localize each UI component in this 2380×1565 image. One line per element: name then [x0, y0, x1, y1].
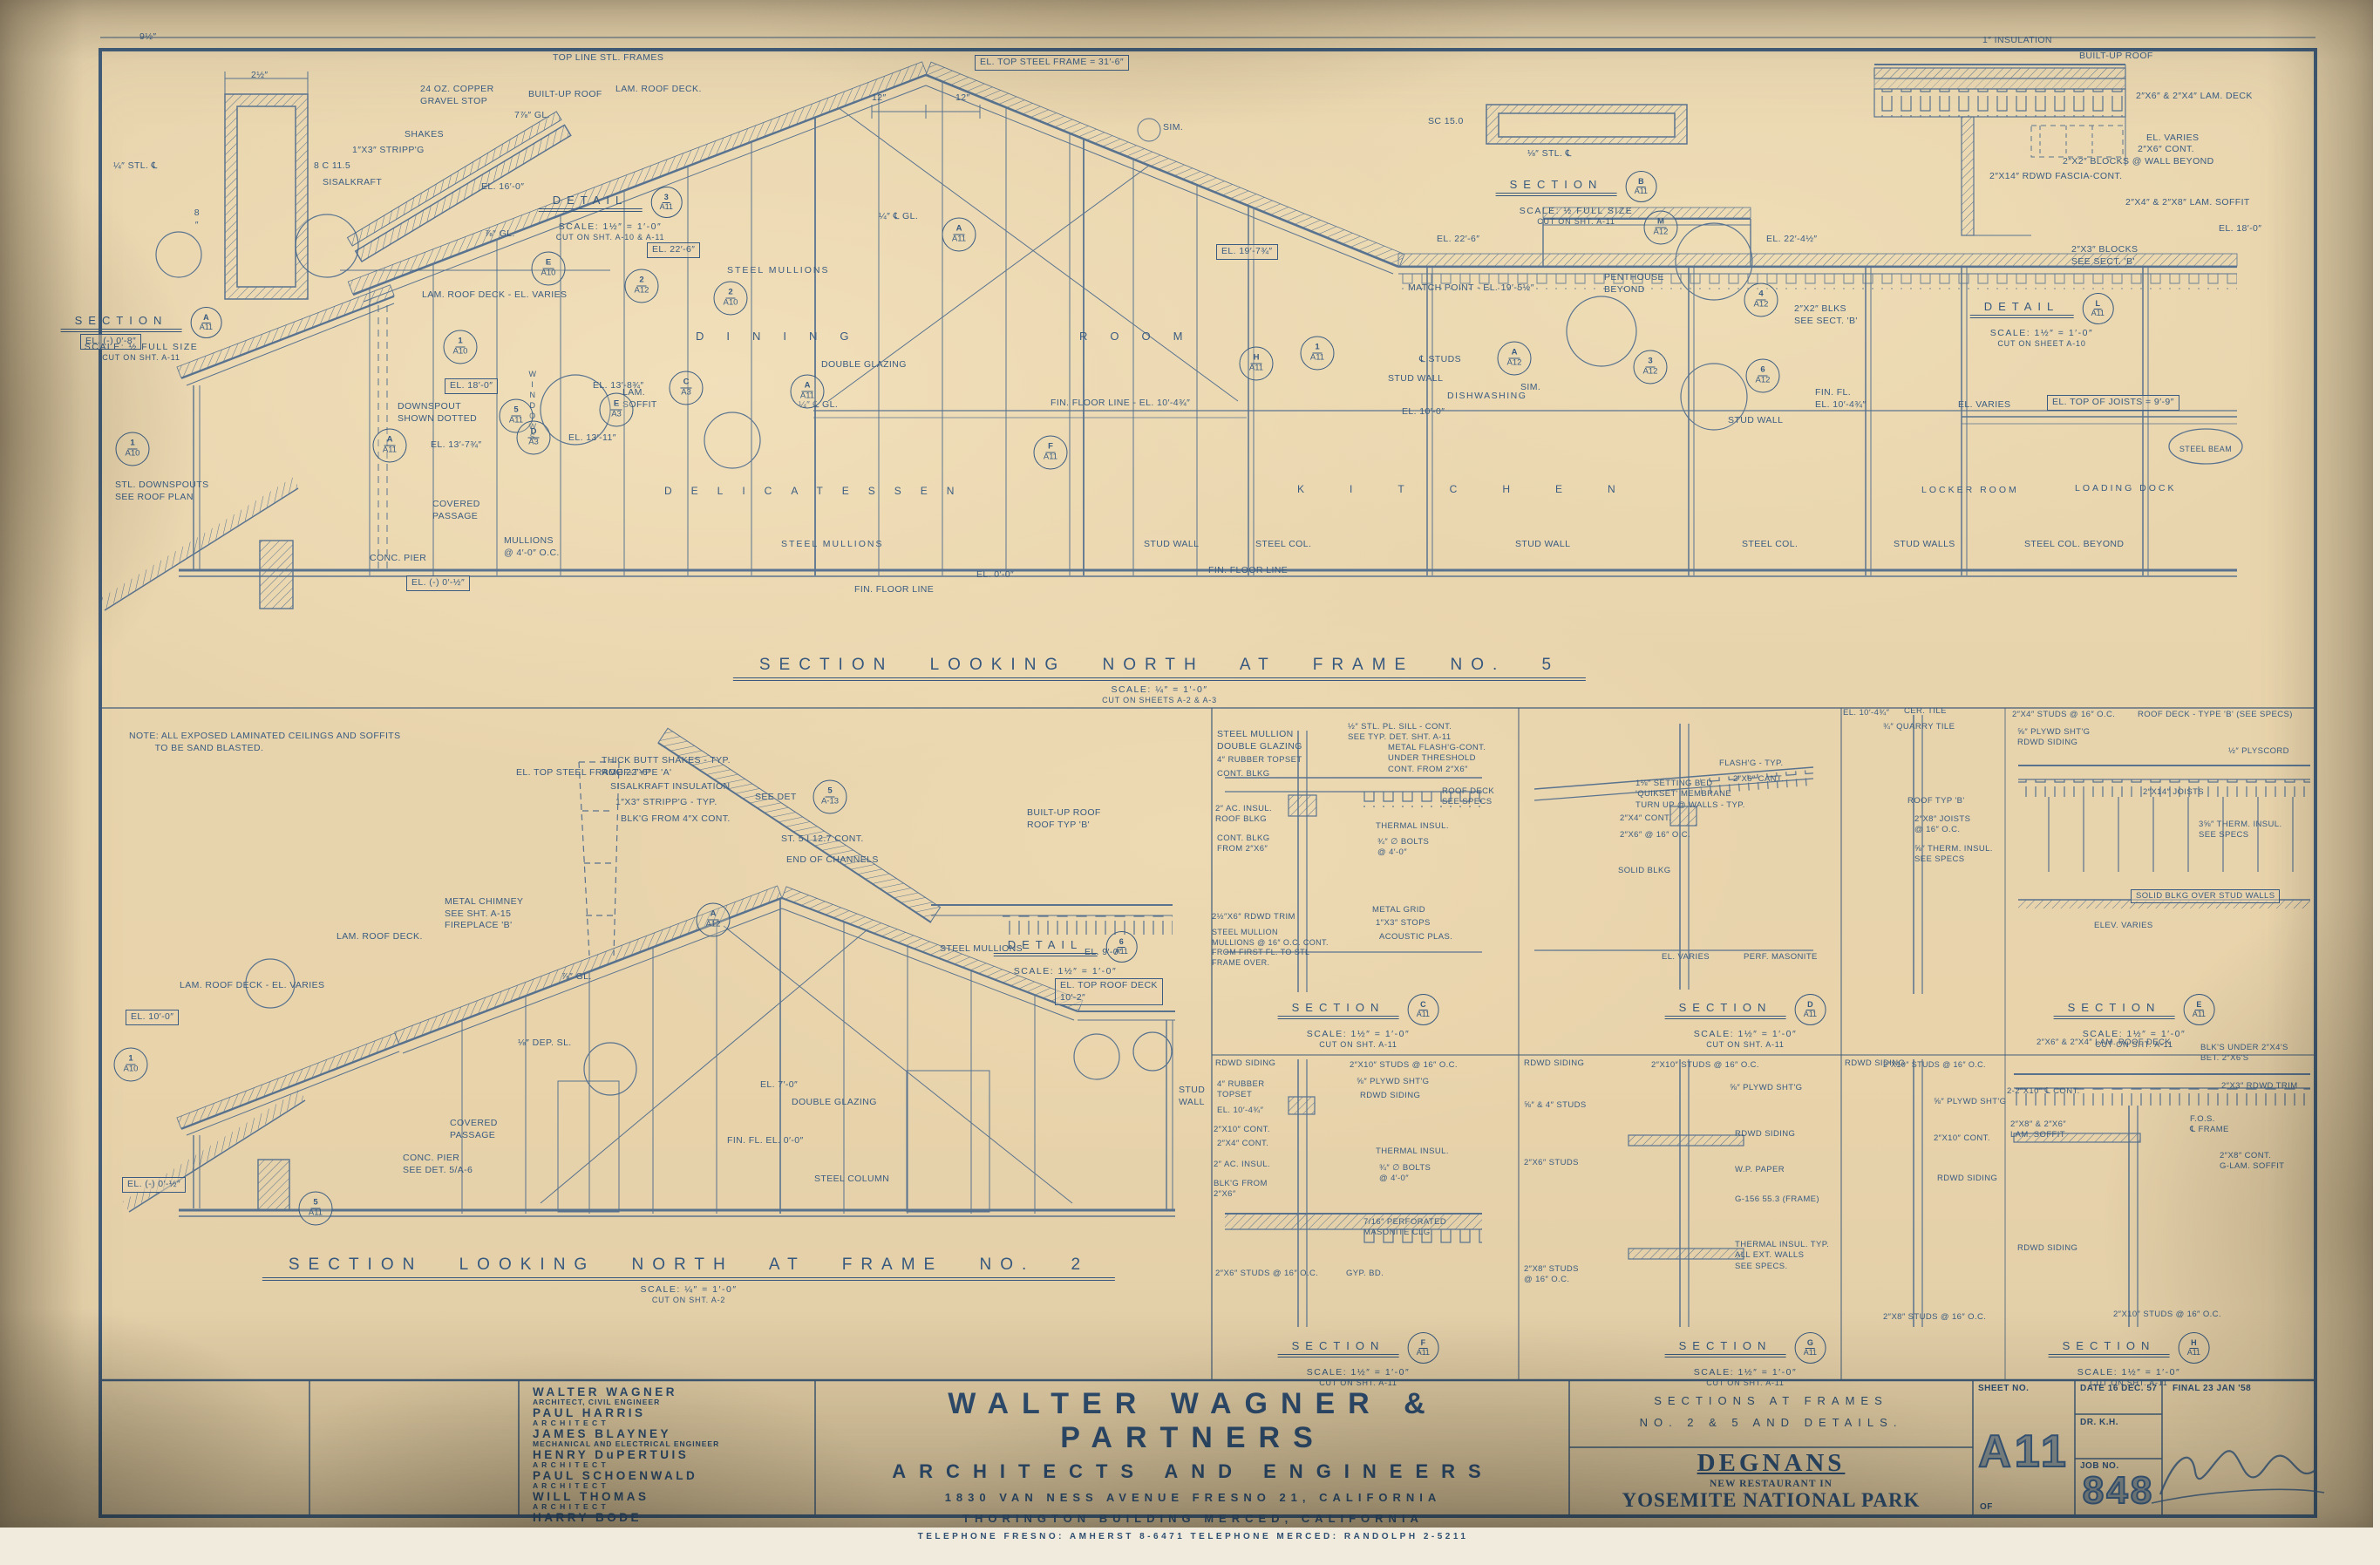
annotation: DOUBLE GLAZING: [792, 1097, 877, 1109]
annotation: CONT. BLKG FROM 2″x6″: [1217, 834, 1270, 855]
section-ref-bubble: CA11: [1407, 994, 1438, 1025]
annotation: THERMAL INSUL.: [1376, 821, 1449, 832]
annotation: SOLID BLKG: [1618, 866, 1671, 876]
section-scale: SCALE: 1½″ = 1′-0″: [1665, 1029, 1826, 1039]
annotation: THICK BUTT SHAKES - TYP. ROOF-TYPE 'A': [602, 755, 731, 779]
section-cut-note: CUT ON SHEETS A-2 & A-3: [733, 696, 1586, 704]
annotation: ⅞″ GL.: [561, 971, 592, 983]
annotation: ℄ STUDS: [1419, 354, 1461, 366]
annotation: W.P. PAPER: [1735, 1165, 1785, 1175]
annotation: EL. 18′-0″: [445, 378, 498, 394]
annotation: EL. 18′-0″: [2219, 223, 2261, 235]
bubble-sheet-id: A12: [1756, 377, 1771, 386]
sheet-number-cell: SHEET NO. A11 OF: [1973, 1380, 2075, 1517]
annotation: STUD WALLS: [1894, 539, 1955, 551]
section-scale: SCALE: 1½″ = 1′-0″: [1665, 1367, 1826, 1378]
annotation: 2″x6″ & 2″x4″ LAM. DECK: [2136, 91, 2253, 103]
bubble-sheet-id: A3: [528, 439, 539, 448]
annotation: 2″x6″ STUDS @ 16″ O.C.: [1215, 1269, 1318, 1279]
section-ref-bubble: DA11: [1794, 994, 1826, 1025]
section-title: SECTIONEA11SCALE: 1½″ = 1′-0″CUT ON SHT.…: [2054, 994, 2215, 1049]
bubble-sheet-id: A12: [635, 287, 649, 296]
sheet-title-line2: NO. 2 & 5 AND DETAILS.: [1569, 1412, 1973, 1434]
annotation: DINING: [696, 330, 872, 344]
annotation: 8 C 11.5: [314, 160, 350, 173]
annotation: STEEL MULLION MULLIONS @ 16″ O.C. CONT. …: [1212, 928, 1329, 969]
blueprint-sheet: 9½″2½″¼″ STL. ℄8 C 11.58″24 OZ. COPPER G…: [0, 0, 2373, 1528]
annotation: EL. 7′-0″: [760, 1079, 798, 1092]
annotation: 24 OZ. COPPER GRAVEL STOP: [420, 84, 494, 107]
annotation: ⅝″ & 4″ STUDS: [1524, 1100, 1587, 1111]
section-title: SECTIONBA11SCALE: ½ FULL SIZECUT ON SHT.…: [1496, 171, 1657, 226]
annotation: ⅛″ STL. ℄: [1527, 148, 1572, 160]
annotation: LAM. ROOF DECK - EL. VARIES: [422, 289, 567, 302]
detail-ref-bubble: 2A12: [625, 269, 659, 303]
section-title: SECTION LOOKING NORTH AT FRAME NO. 5SCAL…: [733, 656, 1586, 704]
detail-ref-bubble: 1A11: [1301, 337, 1335, 371]
annotation: EL. 13′-8¾″: [593, 380, 644, 392]
section-cut-note: CUT ON SHT. A-11: [1278, 1040, 1439, 1049]
annotation: 3⅝″ THERM. INSUL. SEE SPECS: [2199, 820, 2282, 841]
annotation: ⅝″ PLYWD SHT'G RDWD SIDING: [2017, 727, 2090, 749]
annotation: RDWD SIDING: [1735, 1129, 1795, 1140]
person-name: PAUL SCHOENWALD: [533, 1470, 803, 1482]
person-name: PAUL HARRIS: [533, 1407, 803, 1419]
section-ref-bubble: 3A11: [650, 187, 682, 218]
bubble-sheet-id: A3: [681, 389, 691, 398]
annotation: 2″x8″ & 2″x6″ LAM. SOFFIT: [2010, 1119, 2066, 1141]
annotation: EL. 10′-0″: [1402, 406, 1445, 418]
annotation: 2″x2″ BLKS SEE SECT. 'B': [1794, 303, 1858, 327]
section-title-text: DETAIL: [994, 938, 1098, 956]
bubble-sheet-id: A11: [952, 235, 966, 245]
annotation: BUILT-UP ROOF ROOF TYP 'B': [1027, 807, 1101, 831]
annotation: 2″x2″ BLOCKS @ WALL BEYOND: [2063, 156, 2214, 168]
firm-address-2: THORINGTON BUILDING MERCED, CALIFORNIA: [820, 1512, 1566, 1525]
bubble-sheet-id: A12: [1643, 368, 1658, 378]
annotation: EL. 10′-4¾″: [1217, 1106, 1263, 1116]
annotation: BLK'G FROM 2″x6″: [1214, 1179, 1268, 1201]
annotation: ROOM: [1079, 330, 1205, 344]
annotation: STEEL COL.: [1255, 539, 1311, 551]
annotation: FIN. FLOOR LINE: [1208, 565, 1288, 577]
detail-ref-bubble: 6A12: [1746, 359, 1780, 393]
bubble-sheet-id: A11: [1044, 453, 1057, 463]
section-title-text: SECTION: [1278, 1001, 1399, 1019]
annotation: STEEL MULLIONS: [727, 265, 829, 277]
annotation: COVERED PASSAGE: [432, 499, 480, 522]
annotation: ⅞″ GL.: [485, 228, 515, 241]
firm-phone: TELEPHONE FRESNO: AMHERST 8-6471 TELEPHO…: [820, 1532, 1566, 1541]
annotation: PENTHOUSE BEYOND: [1604, 272, 1664, 296]
annotation: EL. 16′-0″: [481, 181, 524, 194]
section-cut-note: CUT ON SHT. A-10 & A-11: [539, 233, 683, 242]
detail-ref-bubble: 2A10: [714, 282, 748, 316]
annotation: ROOF TYP 'B': [1907, 796, 1965, 806]
annotation: 2″x10″ STUDS @ 16″ O.C.: [2113, 1310, 2221, 1320]
annotation: 2″x8″ CONT. G-LAM. SOFFIT: [2220, 1151, 2284, 1173]
annotation: BUILT-UP ROOF: [2079, 51, 2153, 63]
section-title-text: SECTION: [61, 314, 182, 332]
annotation: LAM. ROOF DECK.: [337, 931, 423, 943]
annotation: FIN. FLOOR LINE: [854, 584, 934, 596]
annotation: RDWD SIDING: [1360, 1091, 1420, 1101]
annotation: ROOF DECK SEE SPECS: [1442, 786, 1494, 808]
annotation: 2″x8″ STUDS @ 16″ O.C.: [1883, 1312, 1986, 1323]
sheet-no-label: SHEET NO.: [1978, 1384, 2029, 1393]
section-cut-note: CUT ON SHT. A-11: [61, 353, 222, 362]
section-title-text: SECTION LOOKING NORTH AT FRAME NO. 5: [733, 656, 1586, 681]
section-title: SECTIONCA11SCALE: 1½″ = 1′-0″CUT ON SHT.…: [1278, 994, 1439, 1049]
annotation: 2″x3″ BLOCKS SEE SECT. 'B': [2071, 244, 2138, 268]
annotation: ¼″ STL. ℄: [113, 160, 158, 173]
detail-ref-bubble: 1A10: [114, 1048, 148, 1082]
detail-ref-bubble: 5A-13: [813, 780, 847, 814]
annotation: ST. 5 I 12.7 CONT.: [781, 834, 864, 846]
annotation: METAL GRID: [1372, 905, 1425, 915]
detail-ref-bubble: 1A10: [116, 432, 150, 466]
annotation: EL. (-) 0′-½″: [406, 575, 470, 591]
annotation: LOADING DOCK: [2075, 483, 2177, 495]
annotation: 2″x6″ STUDS: [1524, 1158, 1579, 1168]
annotation: CONT. BLKG: [1217, 769, 1270, 779]
annotation: ½″ PLYSCORD: [2228, 746, 2289, 757]
annotation: RDWD SIDING: [1524, 1058, 1584, 1069]
person-name: JAMES BLAYNEY: [533, 1428, 803, 1440]
annotation: SIM.: [1520, 382, 1540, 394]
annotation: EL. 0′-0″: [976, 569, 1014, 582]
section-title: DETAIL3A11SCALE: 1½″ = 1′-0″CUT ON SHT. …: [539, 187, 683, 242]
detail-ref-bubble: EA3: [600, 393, 634, 427]
detail-ref-bubble: AA12: [1498, 342, 1532, 376]
annotation: ROOF DECK - TYPE 'B' (SEE SPECS): [2138, 710, 2293, 720]
annotation: EL. VARIES: [1958, 399, 2010, 412]
annotation: ¾″ ∅ BOLTS @ 4′-0″: [1379, 1163, 1431, 1185]
detail-ref-bubble: AA11: [942, 218, 976, 252]
bubble-sheet-id: A12: [1754, 301, 1769, 310]
detail-ref-bubble: AA11: [791, 375, 825, 409]
section-scale: SCALE: 1½″ = 1′-0″: [1278, 1029, 1439, 1039]
annotation: CONC. PIER SEE DET. 5/A-6: [403, 1153, 473, 1176]
annotation: PERF. MASONITE: [1744, 952, 1818, 963]
section-ref-bubble: AA11: [190, 307, 221, 338]
annotation: 2″x6″ CONT.: [2138, 144, 2194, 156]
section-title-text: SECTION: [2049, 1339, 2170, 1357]
bubble-sheet-id: A11: [1310, 354, 1324, 364]
section-cut-note: CUT ON SHT. A-11: [1496, 217, 1657, 226]
bubble-sheet-id: A12: [706, 921, 721, 930]
annotation: 12″: [872, 92, 887, 105]
section-title: SECTIONFA11SCALE: 1½″ = 1′-0″CUT ON SHT.…: [1278, 1332, 1439, 1387]
annotation: GYP. BD.: [1346, 1269, 1384, 1279]
annotation: EL. VARIES: [1662, 952, 1710, 963]
bubble-sheet-id: A11: [309, 1209, 323, 1219]
date-value: DATE 16 DEC. 57: [2075, 1380, 2162, 1393]
job-number-cell: JOB NO. 848: [2075, 1459, 2162, 1516]
final-cell: FINAL 23 JAN '58: [2169, 1380, 2315, 1517]
section-ref-bubble: BA11: [1625, 171, 1656, 202]
section-cut-note: CUT ON SHT. A-2: [262, 1296, 1115, 1304]
annotation: EL. TOP OF JOISTS = 9′-9″: [2047, 395, 2179, 411]
section-title: SECTION LOOKING NORTH AT FRAME NO. 2SCAL…: [262, 1255, 1115, 1304]
annotation: EL. (-) 0′-½″: [122, 1177, 186, 1193]
annotation: SC 15.0: [1428, 116, 1464, 128]
section-title: DETAILLA11SCALE: 1½″ = 1′-0″CUT ON SHEET…: [1970, 293, 2114, 348]
final-date: FINAL 23 JAN '58: [2169, 1380, 2315, 1393]
detail-ref-bubble: AA11: [373, 429, 407, 463]
bubble-sheet-id: A10: [541, 269, 556, 279]
section-title-text: DETAIL: [539, 194, 643, 212]
annotation: DOWNSPOUT SHOWN DOTTED: [398, 401, 477, 425]
annotation: 2″ AC. INSUL. ROOF BLKG: [1215, 804, 1272, 826]
blueprint-photo: 9½″2½″¼″ STL. ℄8 C 11.58″24 OZ. COPPER G…: [0, 0, 2380, 1565]
annotation: LAM. ROOF DECK - EL. VARIES: [180, 980, 324, 992]
annotation: 2″ AC. INSUL.: [1214, 1160, 1270, 1170]
section-title: DETAIL6A11SCALE: 1½″ = 1′-0″: [994, 931, 1138, 976]
annotation: RDWD SIDING: [2017, 1243, 2077, 1254]
annotation: MULLIONS @ 4′-0″ O.C.: [504, 535, 560, 559]
annotation: ½″ STL. PL. SILL - CONT. SEE TYP. DET. S…: [1348, 722, 1452, 744]
annotation: TOP LINE STL. FRAMES: [553, 52, 663, 65]
detail-ref-bubble: 3A12: [1634, 350, 1668, 384]
sheet-number: A11: [1978, 1426, 2070, 1478]
annotation: SOLID BLKG OVER STUD WALLS: [2131, 889, 2280, 903]
bubble-sheet-id: A10: [126, 450, 140, 459]
section-title-text: SECTION: [1278, 1339, 1399, 1357]
bubble-sheet-id: A10: [453, 348, 468, 357]
section-cut-note: CUT ON SHEET A-10: [1970, 339, 2114, 348]
annotation: FIN. FL. EL. 10′-4¾″: [1815, 387, 1867, 411]
annotation: 2″x3″ RDWD TRIM: [2221, 1081, 2298, 1092]
project-location: YOSEMITE NATIONAL PARK: [1569, 1489, 1973, 1512]
annotation: 2″x4″ STUDS @ 16″ O.C.: [2012, 710, 2115, 720]
annotation: 2″x10″ STUDS @ 16″ O.C.: [1350, 1060, 1458, 1071]
annotation: FIN. FLOOR LINE - EL. 10′-4¾″: [1051, 398, 1190, 410]
annotation: 8″: [190, 208, 202, 232]
annotation: 1″x3″ STOPS: [1376, 918, 1431, 929]
annotation: EL. 22′-6″: [1437, 234, 1479, 246]
bubble-sheet-id: A3: [611, 411, 622, 420]
annotation: 9½″: [139, 31, 157, 44]
annotation: ¼″ ℄ GL.: [879, 211, 918, 223]
annotation: 4″ RUBBER TOPSET: [1217, 1079, 1264, 1101]
section-title-text: DETAIL: [1970, 300, 2074, 318]
annotation: 12″: [955, 92, 970, 105]
section-title: SECTIONHA11SCALE: 1½″ = 1′-0″CUT ON SHT.…: [2049, 1332, 2210, 1387]
section-title-text: SECTION: [2054, 1001, 2175, 1019]
annotation: 2″x14″ JOISTS: [2143, 787, 2204, 798]
sheet-title-line1: SECTIONS AT FRAMES: [1569, 1391, 1973, 1412]
annotation: BLK'G FROM 4″x CONT.: [621, 813, 731, 826]
annotation-layer: 9½″2½″¼″ STL. ℄8 C 11.58″24 OZ. COPPER G…: [0, 0, 2373, 1528]
annotation: CONC. PIER: [370, 553, 426, 565]
section-title-text: SECTION LOOKING NORTH AT FRAME NO. 2: [262, 1255, 1115, 1281]
annotation: 2½″: [251, 70, 269, 82]
section-title-text: SECTION: [1496, 178, 1617, 196]
section-scale: SCALE: ¼″ = 1′-0″: [733, 684, 1586, 695]
annotation: EL. 22′-6″: [647, 242, 700, 258]
annotation: KITCHEN: [1297, 483, 1661, 497]
annotation: EL. 10′-0″: [126, 1010, 179, 1025]
annotation: BUILT-UP ROOF: [528, 89, 602, 101]
section-title: SECTIONAA11SCALE: ½ FULL SIZECUT ON SHT.…: [61, 307, 222, 362]
annotation: EL. 22′-4½″: [1766, 234, 1818, 246]
annotation: DISHWASHING: [1447, 391, 1527, 403]
annotation: END OF CHANNELS: [786, 854, 879, 867]
annotation: STUD WALL: [1515, 539, 1570, 551]
annotation: STUD WALL: [1179, 1085, 1205, 1108]
annotation: EL. TOP STEEL FRAME = 31′-6″: [975, 55, 1129, 71]
bubble-sheet-id: A11: [800, 392, 814, 402]
section-scale: SCALE: 1½″ = 1′-0″: [994, 966, 1138, 976]
annotation: EL. 13′-11″: [568, 432, 616, 445]
bubble-sheet-id: A11: [383, 446, 397, 456]
section-cut-note: CUT ON SHT. A-11: [1665, 1040, 1826, 1049]
bubble-sheet-id: A-13: [821, 798, 839, 807]
annotation: 7⅞″ GL.: [514, 110, 550, 122]
job-number: 848: [2083, 1469, 2154, 1513]
annotation: NOTE: ALL EXPOSED LAMINATED CEILINGS AND…: [129, 731, 401, 754]
annotation: STEEL MULLIONS: [781, 539, 883, 551]
person-name: WALTER WAGNER: [533, 1386, 803, 1398]
annotation: 2½″x6″ RDWD TRIM: [1212, 912, 1295, 922]
annotation: SEE DET: [755, 792, 797, 804]
annotation: RDWD SIDING: [1215, 1058, 1275, 1069]
annotation: 2″x8″ STUDS @ 16″ O.C.: [1524, 1264, 1579, 1286]
section-scale: SCALE: 1½″ = 1′-0″: [1970, 328, 2114, 338]
date-cell: DATE 16 DEC. 57: [2075, 1380, 2162, 1414]
sheet-of-label: OF: [1980, 1502, 1993, 1512]
annotation: 2″x10″ CONT.: [1934, 1133, 1990, 1144]
annotation: 2″x6″ @ 16″ O.C.: [1620, 830, 1690, 840]
detail-ref-bubble: 1A10: [444, 330, 478, 364]
detail-ref-bubble: EA10: [532, 252, 566, 286]
bubble-sheet-id: A11: [1249, 364, 1263, 374]
section-ref-bubble: HA11: [2178, 1332, 2209, 1364]
firm-subtitle: ARCHITECTS AND ENGINEERS: [820, 1460, 1566, 1483]
annotation: STL. DOWNSPOUTS SEE ROOF PLAN: [115, 480, 209, 503]
annotation: THERMAL INSUL.: [1376, 1147, 1449, 1157]
drawn-by-value: DR. K.H.: [2075, 1414, 2162, 1427]
sheet-title-cell: SECTIONS AT FRAMES NO. 2 & 5 AND DETAILS…: [1569, 1380, 1973, 1447]
annotation: ⅛″ DEP. SL.: [518, 1038, 572, 1050]
annotation: 2″x4″ & 2″x8″ LAM. SOFFIT: [2125, 197, 2250, 209]
project-name: DEGNANS: [1569, 1449, 1973, 1478]
section-scale: SCALE: 1½″ = 1′-0″: [539, 221, 683, 232]
detail-ref-bubble: 5A11: [299, 1192, 333, 1226]
section-title-text: SECTION: [1665, 1339, 1786, 1357]
person-name: HENRY DuPERTUIS: [533, 1449, 803, 1461]
annotation: METAL CHIMNEY SEE SHT. A-15 FIREPLACE 'B…: [445, 896, 523, 932]
annotation: CER. TILE: [1904, 706, 1947, 717]
annotation: STEEL COL.: [1742, 539, 1798, 551]
annotation: ACOUSTIC PLAS.: [1379, 932, 1452, 942]
bubble-sheet-id: A12: [1507, 359, 1522, 369]
section-ref-bubble: GA11: [1794, 1332, 1826, 1364]
bubble-sheet-id: A10: [124, 1065, 139, 1075]
annotation: METAL FLASH'G-CONT. UNDER THRESHOLD CONT…: [1388, 743, 1486, 775]
annotation: DELICATESSEN: [664, 485, 973, 499]
detail-ref-bubble: HA11: [1240, 347, 1274, 381]
annotation: 1″x3″ STRIPP'G: [352, 145, 425, 157]
annotation: STUD WALL: [1144, 539, 1199, 551]
annotation: 7/16″ PERFORATED MASONITE CLG.: [1363, 1217, 1446, 1239]
bubble-sheet-id: A10: [724, 299, 738, 309]
detail-ref-bubble: 4A12: [1744, 283, 1778, 317]
annotation: STEEL COLUMN: [814, 1174, 889, 1186]
bubble-sheet-id: A12: [1654, 228, 1669, 238]
detail-ref-bubble: DA3: [517, 421, 551, 455]
annotation: THERMAL INSUL. TYP. ALL EXT. WALLS SEE S…: [1735, 1240, 1829, 1272]
section-scale: SCALE: ½ FULL SIZE: [61, 342, 222, 352]
annotation: G-156 55.3 (FRAME): [1735, 1194, 1819, 1205]
annotation: EL. TOP ROOF DECK 10′-2″: [1055, 978, 1163, 1005]
annotation: 2″x4″ CONT.: [1217, 1139, 1268, 1149]
drawn-by-cell: DR. K.H.: [2075, 1414, 2162, 1459]
annotation: ⅝″ PLYWD SHT'G: [1934, 1097, 2006, 1107]
annotation: SHAKES: [405, 129, 444, 141]
section-cut-note: CUT ON SHT. A-11: [2054, 1040, 2215, 1049]
detail-ref-bubble: CA3: [670, 371, 704, 405]
annotation: COVERED PASSAGE: [450, 1118, 498, 1141]
detail-ref-bubble: FA11: [1034, 436, 1068, 470]
annotation: EL. 13′-7¾″: [431, 439, 482, 452]
firm-name: WALTER WAGNER & PARTNERS: [820, 1387, 1566, 1455]
annotation: ¾″ QUARRY TILE: [1883, 722, 1955, 732]
annotation: FIN. FL. EL. 0′-0″: [727, 1135, 804, 1147]
firm-address-1: 1830 VAN NESS AVENUE FRESNO 21, CALIFORN…: [820, 1491, 1566, 1504]
section-ref-bubble: EA11: [2183, 994, 2214, 1025]
annotation: STEEL MULLION DOUBLE GLAZING: [1217, 729, 1302, 752]
section-scale: SCALE: ½ FULL SIZE: [1496, 206, 1657, 216]
section-title-text: SECTION: [1665, 1001, 1786, 1019]
section-ref-bubble: 6A11: [1105, 931, 1137, 963]
annotation: STUD WALL: [1728, 415, 1783, 427]
annotation: ⅝″ PLYWD SHT'G: [1357, 1077, 1429, 1087]
titleblock-firm: WALTER WAGNER & PARTNERS ARCHITECTS AND …: [820, 1380, 1566, 1541]
annotation: SISALKRAFT: [323, 177, 382, 189]
annotation: RDWD SIDING: [1937, 1174, 1997, 1184]
annotation: LAM. ROOF DECK.: [615, 84, 702, 96]
annotation: 4″ RUBBER TOPSET: [1217, 755, 1302, 765]
annotation: EL. 19′-7¾″: [1216, 244, 1278, 260]
person-name: WILL THOMAS: [533, 1491, 803, 1503]
annotation: STEEL COL. BEYOND: [2024, 539, 2124, 551]
section-scale: SCALE: 1½″ = 1′-0″: [2054, 1029, 2215, 1039]
annotation: 2″x10″ STUDS @ 16″ O.C.: [1883, 1060, 1986, 1071]
annotation: LOCKER ROOM: [1921, 485, 2019, 497]
section-scale: SCALE: 1½″ = 1′-0″: [2049, 1367, 2210, 1378]
section-ref-bubble: FA11: [1407, 1332, 1438, 1364]
annotation: 1″ INSULATION: [1982, 35, 2052, 47]
annotation: FLASH'G - TYP.: [1719, 759, 1784, 769]
annotation: DOUBLE GLAZING: [821, 359, 907, 371]
section-ref-bubble: LA11: [2082, 293, 2113, 324]
annotation: 2″x10″ STUDS @ 16″ O.C.: [1651, 1060, 1759, 1071]
annotation: 2″x4″ CONT.: [1620, 813, 1671, 824]
section-title: SECTIONDA11SCALE: 1½″ = 1′-0″CUT ON SHT.…: [1665, 994, 1826, 1049]
annotation: ELEV. VARIES: [2094, 921, 2153, 931]
section-scale: SCALE: ¼″ = 1′-0″: [262, 1284, 1115, 1295]
annotation: MATCH POINT - EL. 19′-5½″: [1408, 282, 1534, 295]
detail-ref-bubble: AA12: [697, 903, 731, 937]
annotation: STUD WALL: [1388, 373, 1443, 385]
titleblock-people: WALTER WAGNERARCHITECT, CIVIL ENGINEERPA…: [524, 1383, 812, 1528]
annotation: ⅝″ PLYWD SHT'G: [1730, 1083, 1802, 1093]
project-subtitle: NEW RESTAURANT IN: [1569, 1479, 1973, 1489]
annotation: EL. VARIES: [2146, 133, 2199, 145]
person-name: HARRY BODE: [533, 1512, 803, 1524]
